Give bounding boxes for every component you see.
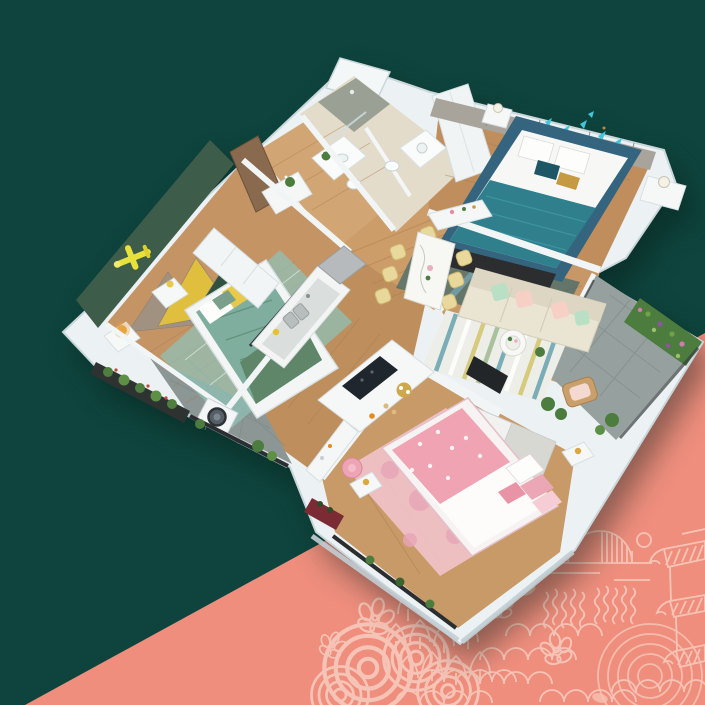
gold-tray-icon xyxy=(397,383,412,398)
gold-candle-icon-2 xyxy=(575,448,581,454)
orange-juice-icon xyxy=(369,413,375,419)
toilet-icon-2 xyxy=(385,161,399,171)
balcony-plant-icon xyxy=(605,413,619,427)
gold-candle-icon xyxy=(363,479,369,485)
lamp-icon xyxy=(494,104,503,113)
round-basin-icon xyxy=(417,143,427,153)
floor-plan-scene xyxy=(0,0,705,705)
shower-head-icon xyxy=(350,90,354,94)
lamp-icon-2 xyxy=(659,177,670,188)
faucet-icon xyxy=(306,294,310,298)
kettle-icon xyxy=(273,329,279,335)
poster-canvas xyxy=(0,0,705,705)
yellow-lamp-icon xyxy=(167,281,174,288)
